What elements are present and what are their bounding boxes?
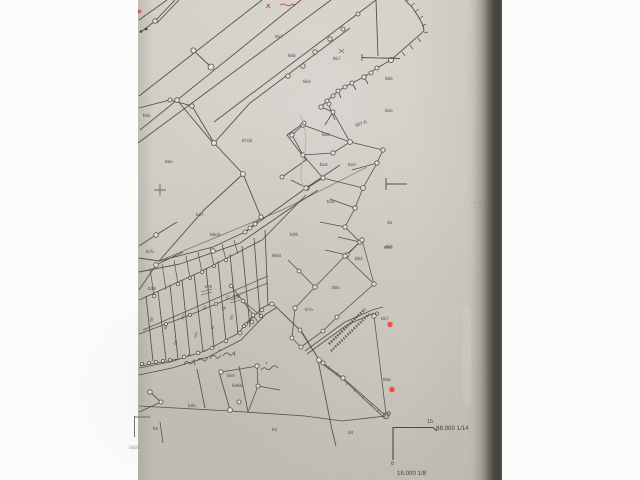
svg-text:b35: b35 bbox=[188, 403, 196, 408]
svg-text:b8o3: b8o3 bbox=[210, 232, 221, 237]
svg-text:bo7: bo7 bbox=[196, 212, 204, 217]
svg-text:657: 657 bbox=[275, 34, 283, 39]
svg-text:16.000 1/8: 16.000 1/8 bbox=[397, 470, 427, 477]
svg-text:665t: 665t bbox=[272, 253, 282, 258]
svg-text:b3: b3 bbox=[348, 430, 354, 435]
svg-text:6465: 6465 bbox=[232, 383, 243, 388]
svg-text:684: 684 bbox=[384, 245, 392, 250]
svg-text:bo3: bo3 bbox=[348, 162, 356, 167]
svg-text:15: 15 bbox=[427, 419, 433, 425]
svg-text:675: 675 bbox=[146, 249, 154, 254]
svg-text:b55: b55 bbox=[143, 113, 151, 118]
svg-text:b39: b39 bbox=[148, 286, 156, 291]
svg-text:656: 656 bbox=[383, 377, 391, 382]
svg-text:657: 657 bbox=[381, 316, 389, 321]
svg-text:bo4: bo4 bbox=[320, 162, 328, 167]
svg-text:67o: 67o bbox=[305, 307, 313, 312]
svg-text:6: 6 bbox=[391, 461, 394, 467]
svg-text:boo: boo bbox=[327, 199, 335, 204]
svg-text:654: 654 bbox=[303, 79, 311, 84]
svg-text:45: 45 bbox=[387, 220, 393, 225]
svg-text:66o: 66o bbox=[233, 293, 241, 298]
svg-text:657: 657 bbox=[333, 56, 341, 61]
svg-text:65b: 65b bbox=[288, 53, 296, 58]
svg-text:5600: 5600 bbox=[129, 445, 140, 451]
svg-text:bb5: bb5 bbox=[332, 285, 340, 290]
svg-text:b3: b3 bbox=[272, 427, 278, 432]
svg-text:b7o5: b7o5 bbox=[242, 138, 253, 143]
svg-text:6o5: 6o5 bbox=[385, 108, 393, 113]
svg-text:676: 676 bbox=[205, 284, 213, 289]
svg-text:665: 665 bbox=[385, 76, 393, 81]
svg-text:b54: b54 bbox=[227, 373, 235, 378]
svg-text:bb4: bb4 bbox=[355, 256, 363, 261]
svg-text:bo6: bo6 bbox=[322, 132, 330, 137]
svg-text:b6o: b6o bbox=[165, 159, 173, 164]
svg-text:b39: b39 bbox=[290, 232, 298, 237]
svg-text:b5: b5 bbox=[153, 426, 159, 431]
svg-text:88.000 1/14: 88.000 1/14 bbox=[436, 425, 469, 432]
